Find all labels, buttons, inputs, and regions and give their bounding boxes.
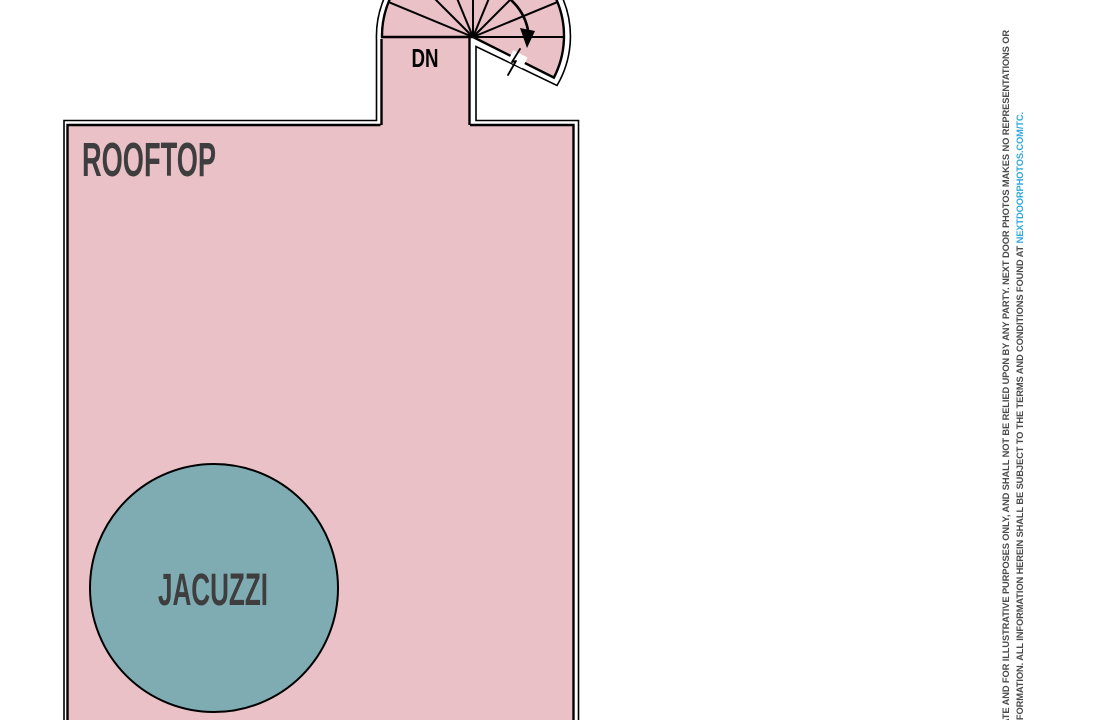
rooftop-label: ROOFTOP	[82, 134, 216, 187]
disclaimer-line-1: CONTAINED HEREIN ARE APPROXIMATE AND FOR…	[1001, 30, 1011, 720]
disclaimer-line-2: TY ARISING FROM USE OF THIS INFORMATION.…	[1015, 112, 1025, 720]
floor-plan-page: ROOFTOP JACUZZI DN CONTAINED HEREIN ARE …	[0, 0, 1093, 720]
jacuzzi-label: JACUZZI	[158, 564, 268, 615]
disclaimer-line-2-text: TY ARISING FROM USE OF THIS INFORMATION.…	[1015, 243, 1025, 720]
disclaimer-terms-url: NEXTDOORPHOTOS.COM/TC.	[1015, 112, 1025, 243]
stairs-down-label: DN	[412, 43, 439, 73]
floor-plan: ROOFTOP JACUZZI DN CONTAINED HEREIN ARE …	[0, 0, 1093, 720]
